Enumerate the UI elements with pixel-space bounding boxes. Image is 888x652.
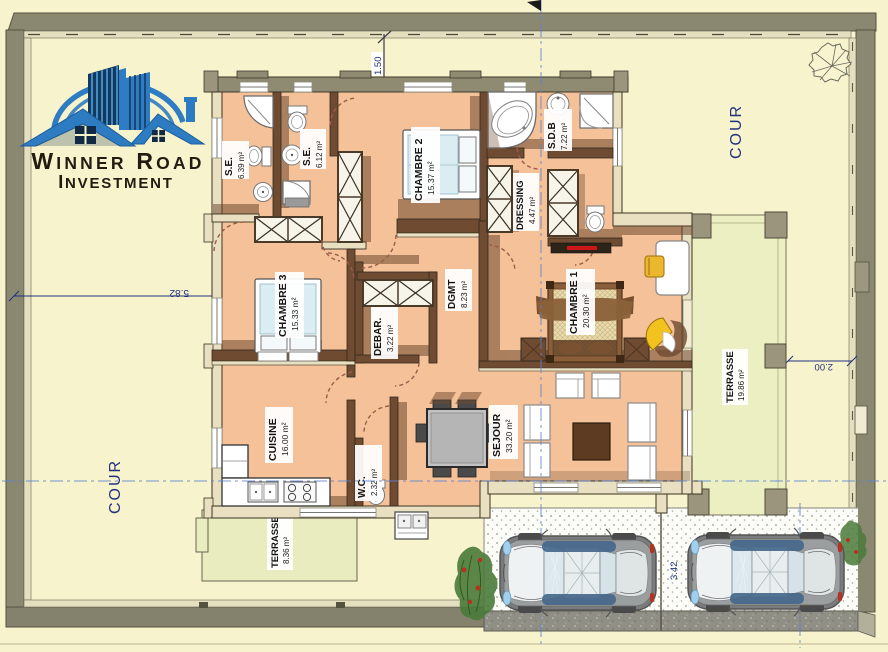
svg-text:COUR: COUR: [728, 104, 745, 159]
svg-text:CHAMBRE 1: CHAMBRE 1: [568, 271, 580, 334]
svg-text:33.20 m²: 33.20 m²: [504, 419, 514, 453]
svg-text:2.32 m²: 2.32 m²: [370, 469, 379, 496]
svg-text:15.33 m²: 15.33 m²: [290, 297, 300, 331]
svg-text:1.50: 1.50: [373, 57, 384, 76]
svg-text:15.37 m²: 15.37 m²: [426, 161, 436, 195]
svg-text:20.30 m²: 20.30 m²: [581, 294, 591, 328]
svg-text:DGMT: DGMT: [447, 280, 458, 309]
svg-text:CHAMBRE 2: CHAMBRE 2: [413, 138, 425, 201]
svg-text:3.42: 3.42: [669, 562, 680, 581]
svg-text:19.86 m²: 19.86 m²: [737, 369, 746, 401]
svg-text:6.12 m²: 6.12 m²: [315, 141, 324, 168]
svg-text:3.22 m²: 3.22 m²: [386, 325, 395, 352]
svg-text:S.D.B: S.D.B: [547, 122, 558, 149]
svg-text:CHAMBRE 3: CHAMBRE 3: [277, 274, 289, 337]
svg-text:5.82: 5.82: [169, 287, 189, 298]
svg-text:6.39 m²: 6.39 m²: [237, 152, 246, 179]
svg-text:SEJOUR: SEJOUR: [491, 413, 503, 457]
svg-text:DEBAR.: DEBAR.: [373, 317, 384, 356]
svg-text:S.E.: S.E.: [302, 147, 313, 166]
svg-text:8.23 m²: 8.23 m²: [460, 281, 469, 308]
svg-text:COUR: COUR: [107, 459, 124, 514]
svg-text:16.00 m²: 16.00 m²: [280, 422, 290, 456]
svg-text:CUISINE: CUISINE: [267, 418, 279, 461]
svg-text:8.36 m²: 8.36 m²: [282, 537, 291, 564]
svg-text:7.22 m²: 7.22 m²: [560, 123, 569, 150]
svg-text:2.00: 2.00: [815, 361, 834, 372]
svg-text:INVESTMENT: INVESTMENT: [58, 172, 174, 192]
svg-text:TERRASSE: TERRASSE: [270, 516, 281, 568]
svg-text:W.C.: W.C.: [357, 476, 368, 498]
svg-text:DRESSING: DRESSING: [515, 180, 526, 230]
svg-text:S.E.: S.E.: [224, 157, 235, 176]
svg-text:TERRASSE: TERRASSE: [725, 351, 736, 403]
svg-text:4.47 m²: 4.47 m²: [528, 197, 537, 224]
